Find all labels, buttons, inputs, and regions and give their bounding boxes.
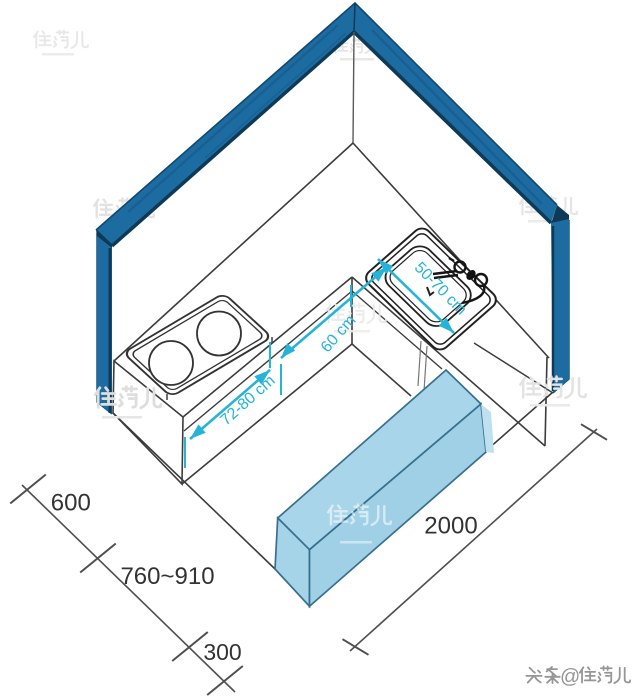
svg-text:2000: 2000 [424, 513, 477, 540]
svg-text:300: 300 [203, 639, 241, 665]
svg-text:600: 600 [51, 490, 91, 517]
svg-text:760~910: 760~910 [120, 563, 214, 590]
svg-text:@: @ [560, 666, 580, 688]
